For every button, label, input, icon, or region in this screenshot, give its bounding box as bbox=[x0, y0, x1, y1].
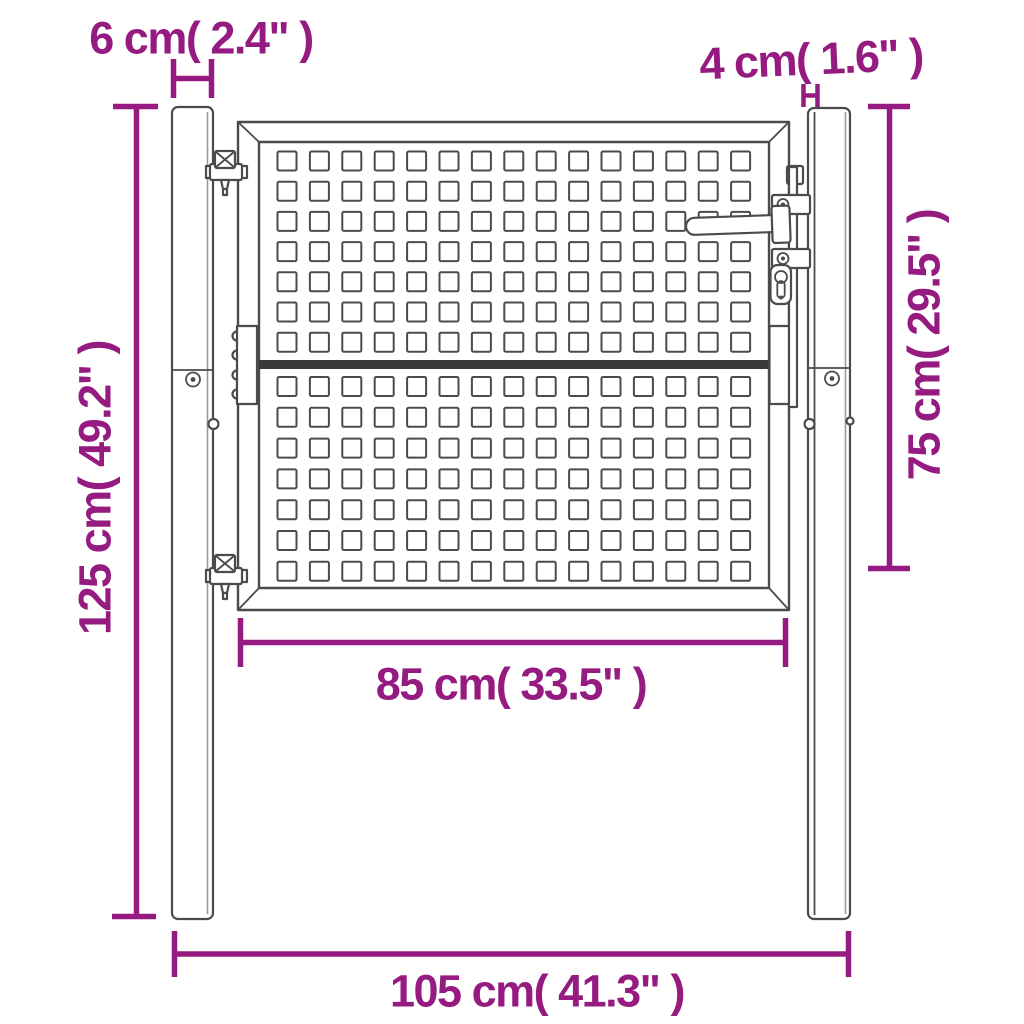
perforation-square bbox=[537, 562, 556, 581]
left-post bbox=[172, 107, 219, 919]
perforation-square bbox=[310, 562, 329, 581]
hinge-plate-left bbox=[233, 326, 258, 404]
perforation-square bbox=[278, 408, 297, 427]
perforation-square bbox=[731, 272, 750, 291]
perforation-square bbox=[504, 439, 523, 458]
perforation-square bbox=[602, 333, 621, 352]
perforation-square bbox=[504, 408, 523, 427]
perforation-square bbox=[440, 242, 459, 261]
perforation-square bbox=[310, 152, 329, 171]
perforation-square bbox=[440, 152, 459, 171]
perforation-square bbox=[699, 469, 718, 488]
perforation-square bbox=[634, 182, 653, 201]
perforation-square bbox=[342, 531, 361, 550]
perforation-square bbox=[504, 500, 523, 519]
perforation-square bbox=[310, 242, 329, 261]
hinge-plate-left-body bbox=[237, 326, 257, 404]
perforation-square bbox=[731, 242, 750, 261]
hinge-top-pin bbox=[221, 180, 229, 189]
perforation-square bbox=[537, 531, 556, 550]
perforation-square bbox=[375, 212, 394, 231]
dim-label-post-height: 125 cm( 49.2" ) bbox=[73, 341, 118, 635]
perforation-square bbox=[731, 408, 750, 427]
perforation-square bbox=[569, 500, 588, 519]
dim-post-width-marker bbox=[174, 59, 212, 98]
perforation-square bbox=[375, 152, 394, 171]
perforation-square bbox=[278, 562, 297, 581]
perforation-square bbox=[440, 439, 459, 458]
perforation-square bbox=[440, 212, 459, 231]
perforation-square bbox=[569, 439, 588, 458]
perforation-square bbox=[634, 408, 653, 427]
perforation-square bbox=[602, 531, 621, 550]
perforation-square bbox=[504, 212, 523, 231]
perforation-square bbox=[537, 333, 556, 352]
perforation-square bbox=[504, 152, 523, 171]
perforation-square bbox=[666, 272, 685, 291]
perforation-square bbox=[699, 500, 718, 519]
perforation-square bbox=[602, 182, 621, 201]
perforation-square bbox=[634, 303, 653, 322]
perforation-square bbox=[342, 303, 361, 322]
perforation-square bbox=[342, 272, 361, 291]
perforation-square bbox=[699, 562, 718, 581]
gate-diagram bbox=[0, 0, 1024, 1024]
perforation-square bbox=[440, 377, 459, 396]
perforation-square bbox=[666, 212, 685, 231]
perforation-square bbox=[569, 531, 588, 550]
perforation-square bbox=[504, 182, 523, 201]
perforation-square bbox=[634, 531, 653, 550]
perforation-square bbox=[731, 531, 750, 550]
perforation-square bbox=[504, 531, 523, 550]
perforation-square bbox=[602, 242, 621, 261]
perforation-square bbox=[602, 500, 621, 519]
perforation-square bbox=[342, 212, 361, 231]
perforation-square bbox=[666, 469, 685, 488]
perforation-square bbox=[472, 242, 491, 261]
perforation-square bbox=[569, 242, 588, 261]
frame-bevel-bottom-left bbox=[238, 588, 259, 610]
perforation-square bbox=[472, 377, 491, 396]
perforation-square bbox=[666, 333, 685, 352]
perforation-square bbox=[666, 182, 685, 201]
perforation-square bbox=[634, 439, 653, 458]
right-post bbox=[805, 108, 854, 919]
perforation-square bbox=[472, 500, 491, 519]
perforation-square bbox=[537, 242, 556, 261]
perforation-square bbox=[569, 303, 588, 322]
perforation-square bbox=[407, 562, 426, 581]
perforation-square bbox=[634, 152, 653, 171]
perforation-square bbox=[375, 500, 394, 519]
perforation-square bbox=[440, 182, 459, 201]
perforation-square bbox=[731, 500, 750, 519]
perforation-square bbox=[310, 531, 329, 550]
perforation-square bbox=[342, 500, 361, 519]
perforation-square bbox=[666, 562, 685, 581]
perforation-square bbox=[310, 377, 329, 396]
perforation-square bbox=[699, 303, 718, 322]
perforation-square bbox=[537, 469, 556, 488]
right-post-knob-small bbox=[847, 418, 854, 425]
perforation-square bbox=[602, 152, 621, 171]
perforation-square bbox=[375, 531, 394, 550]
perforation-square bbox=[699, 377, 718, 396]
frame-bevel-bottom-right bbox=[769, 588, 789, 610]
handle-lever bbox=[686, 215, 783, 235]
perforation-grid-bottom bbox=[278, 377, 751, 581]
perforation-square bbox=[407, 531, 426, 550]
perforation-square bbox=[407, 333, 426, 352]
perforation-square bbox=[504, 333, 523, 352]
perforation-square bbox=[634, 500, 653, 519]
perforation-square bbox=[342, 182, 361, 201]
middle-rail bbox=[259, 360, 769, 369]
perforation-square bbox=[731, 303, 750, 322]
perforation-square bbox=[472, 562, 491, 581]
frame-bevel-top-left bbox=[238, 122, 259, 142]
perforation-square bbox=[472, 469, 491, 488]
perforation-square bbox=[407, 212, 426, 231]
perforation-square bbox=[310, 272, 329, 291]
perforation-square bbox=[472, 212, 491, 231]
perforation-square bbox=[569, 212, 588, 231]
perforation-square bbox=[666, 377, 685, 396]
perforation-square bbox=[537, 377, 556, 396]
perforation-square bbox=[699, 242, 718, 261]
perforation-square bbox=[504, 562, 523, 581]
dim-label-hinge-gap: 4 cm( 1.6" ) bbox=[698, 32, 923, 87]
hinge-bottom-pin bbox=[221, 584, 229, 593]
perforation-square bbox=[342, 242, 361, 261]
perforation-square bbox=[504, 242, 523, 261]
lock-screw-dot bbox=[779, 296, 783, 300]
perforation-square bbox=[699, 333, 718, 352]
perforation-square bbox=[310, 439, 329, 458]
perforation-square bbox=[699, 439, 718, 458]
perforation-square bbox=[602, 303, 621, 322]
perforation-square bbox=[472, 531, 491, 550]
perforation-square bbox=[375, 439, 394, 458]
perforation-square bbox=[440, 531, 459, 550]
perforation-square bbox=[440, 408, 459, 427]
gate-leaf bbox=[238, 122, 789, 610]
perforation-square bbox=[407, 377, 426, 396]
perforation-square bbox=[569, 377, 588, 396]
left-post-screw-dot bbox=[191, 377, 196, 382]
perforation-square bbox=[602, 439, 621, 458]
perforation-square bbox=[731, 377, 750, 396]
perforation-square bbox=[666, 439, 685, 458]
perforation-square bbox=[504, 469, 523, 488]
perforation-square bbox=[440, 303, 459, 322]
perforation-square bbox=[634, 333, 653, 352]
perforation-square bbox=[375, 333, 394, 352]
perforation-square bbox=[278, 272, 297, 291]
perforation-square bbox=[472, 303, 491, 322]
perforation-square bbox=[699, 531, 718, 550]
perforation-square bbox=[666, 408, 685, 427]
perforation-square bbox=[472, 439, 491, 458]
perforation-square bbox=[278, 531, 297, 550]
perforation-square bbox=[407, 242, 426, 261]
perforation-square bbox=[731, 333, 750, 352]
perforation-square bbox=[407, 272, 426, 291]
perforation-square bbox=[666, 531, 685, 550]
perforation-square bbox=[569, 152, 588, 171]
perforation-square bbox=[666, 242, 685, 261]
dim-label-post-width: 6 cm( 2.4" ) bbox=[89, 16, 312, 61]
perforation-square bbox=[278, 377, 297, 396]
perforation-square bbox=[634, 377, 653, 396]
perforation-square bbox=[634, 469, 653, 488]
perforation-square bbox=[472, 182, 491, 201]
perforation-square bbox=[472, 272, 491, 291]
perforation-square bbox=[504, 377, 523, 396]
perforation-square bbox=[537, 152, 556, 171]
latch-keep-bottom-screw-dot bbox=[781, 257, 785, 261]
dim-label-gate-height: 75 cm( 29.5" ) bbox=[902, 210, 947, 481]
perforation-square bbox=[278, 212, 297, 231]
perforation-square bbox=[375, 377, 394, 396]
perforation-square bbox=[666, 500, 685, 519]
perforation-square bbox=[472, 152, 491, 171]
perforation-square bbox=[699, 152, 718, 171]
perforation-square bbox=[278, 469, 297, 488]
perforation-square bbox=[310, 182, 329, 201]
perforation-square bbox=[407, 182, 426, 201]
hinge-top-pin-tip bbox=[223, 189, 227, 195]
perforation-square bbox=[407, 408, 426, 427]
perforation-square bbox=[666, 152, 685, 171]
perforation-square bbox=[310, 212, 329, 231]
perforation-square bbox=[440, 469, 459, 488]
left-post-knob bbox=[209, 419, 219, 429]
perforation-square bbox=[569, 408, 588, 427]
perforation-square bbox=[407, 469, 426, 488]
perforation-square bbox=[342, 152, 361, 171]
perforation-square bbox=[731, 439, 750, 458]
perforation-square bbox=[342, 562, 361, 581]
perforation-square bbox=[310, 408, 329, 427]
perforation-square bbox=[342, 377, 361, 396]
perforation-square bbox=[537, 303, 556, 322]
perforation-square bbox=[440, 272, 459, 291]
perforation-square bbox=[569, 469, 588, 488]
perforation-square bbox=[278, 303, 297, 322]
perforation-square bbox=[375, 303, 394, 322]
perforation-square bbox=[278, 242, 297, 261]
perforation-square bbox=[602, 212, 621, 231]
perforation-square bbox=[731, 152, 750, 171]
diagram-canvas: 6 cm( 2.4" ) 4 cm( 1.6" ) 125 cm( 49.2" … bbox=[0, 0, 1024, 1024]
perforation-square bbox=[375, 182, 394, 201]
perforation-square bbox=[537, 272, 556, 291]
perforation-square bbox=[602, 272, 621, 291]
perforation-square bbox=[375, 242, 394, 261]
perforation-square bbox=[278, 439, 297, 458]
perforation-square bbox=[407, 500, 426, 519]
latch-plate-right-body bbox=[770, 326, 790, 404]
perforation-square bbox=[472, 333, 491, 352]
perforation-square bbox=[699, 182, 718, 201]
perforation-square bbox=[699, 272, 718, 291]
perforation-square bbox=[407, 152, 426, 171]
perforation-square bbox=[375, 408, 394, 427]
perforation-square bbox=[310, 333, 329, 352]
perforation-square bbox=[407, 303, 426, 322]
right-post-screw-dot bbox=[830, 376, 835, 381]
perforation-square bbox=[440, 500, 459, 519]
handle-pivot bbox=[771, 205, 790, 243]
perforation-square bbox=[731, 182, 750, 201]
perforation-square bbox=[537, 408, 556, 427]
perforation-square bbox=[634, 272, 653, 291]
perforation-square bbox=[537, 500, 556, 519]
perforation-square bbox=[504, 272, 523, 291]
perforation-square bbox=[602, 408, 621, 427]
perforation-square bbox=[569, 333, 588, 352]
perforation-square bbox=[310, 469, 329, 488]
perforation-square bbox=[569, 182, 588, 201]
perforation-square bbox=[342, 469, 361, 488]
frame-bevel-top-right bbox=[769, 122, 789, 142]
perforation-square bbox=[569, 562, 588, 581]
perforation-square bbox=[569, 272, 588, 291]
perforation-square bbox=[602, 469, 621, 488]
perforation-square bbox=[440, 333, 459, 352]
perforation-square bbox=[731, 469, 750, 488]
perforation-square bbox=[504, 303, 523, 322]
dim-hinge-gap-marker bbox=[804, 84, 818, 107]
perforation-square bbox=[634, 242, 653, 261]
lock-cylinder bbox=[771, 265, 792, 304]
dim-label-gate-width: 85 cm( 33.5" ) bbox=[376, 662, 647, 707]
perforation-square bbox=[472, 408, 491, 427]
perforation-square bbox=[537, 439, 556, 458]
perforation-square bbox=[278, 182, 297, 201]
hinge-bottom-pin-tip bbox=[223, 593, 227, 599]
perforation-square bbox=[310, 500, 329, 519]
perforation-square bbox=[666, 303, 685, 322]
perforation-square bbox=[731, 562, 750, 581]
perforation-square bbox=[342, 333, 361, 352]
perforation-square bbox=[634, 562, 653, 581]
perforation-square bbox=[342, 408, 361, 427]
perforation-square bbox=[407, 439, 426, 458]
right-post-knob bbox=[805, 419, 815, 429]
perforation-square bbox=[375, 469, 394, 488]
perforation-square bbox=[699, 408, 718, 427]
perforation-square bbox=[602, 562, 621, 581]
perforation-square bbox=[602, 377, 621, 396]
perforation-square bbox=[342, 439, 361, 458]
perforation-square bbox=[440, 562, 459, 581]
perforation-square bbox=[634, 212, 653, 231]
dim-label-total-width: 105 cm( 41.3" ) bbox=[390, 969, 684, 1014]
perforation-square bbox=[278, 152, 297, 171]
perforation-grid-top bbox=[278, 152, 751, 352]
perforation-square bbox=[310, 303, 329, 322]
perforation-square bbox=[375, 562, 394, 581]
perforation-square bbox=[375, 272, 394, 291]
perforation-square bbox=[278, 500, 297, 519]
perforation-square bbox=[278, 333, 297, 352]
perforation-square bbox=[537, 212, 556, 231]
perforation-square bbox=[537, 182, 556, 201]
